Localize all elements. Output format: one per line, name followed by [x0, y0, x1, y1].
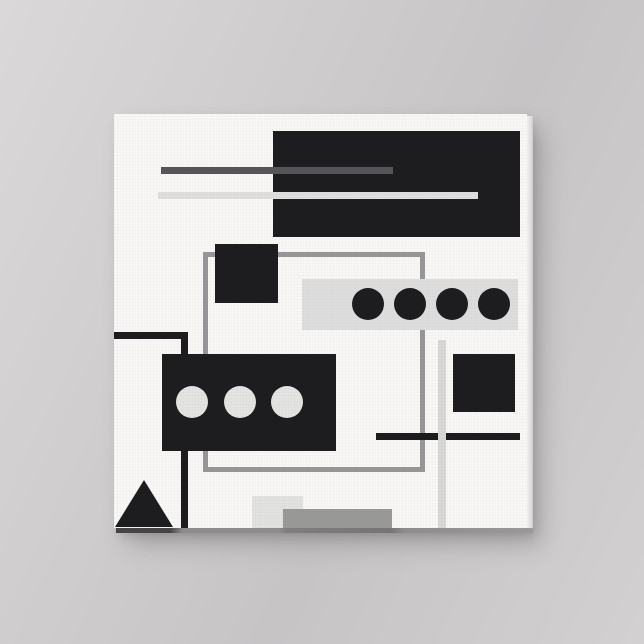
shape-black-line-horizontal	[376, 433, 520, 440]
shape-dotted-bar	[302, 279, 518, 330]
shape-black-rect-three-circles-dot	[224, 386, 256, 418]
shape-small-black-square-top	[215, 244, 278, 303]
shape-dotted-bar-dot	[352, 288, 384, 320]
shape-black-rect-three-circles	[162, 354, 336, 451]
canvas-right-edge	[527, 116, 533, 530]
shape-dotted-bar-dot	[478, 288, 510, 320]
shape-light-gray-stripe	[158, 192, 478, 199]
shape-light-gray-line-vertical	[438, 340, 446, 528]
shape-dark-gray-stripe	[161, 167, 393, 174]
shape-black-l-line-horizontal	[114, 332, 188, 339]
shape-medium-gray-bar-bottom	[283, 509, 392, 528]
canvas-bottom-edge	[116, 528, 533, 533]
shape-dotted-bar-dot	[394, 288, 426, 320]
canvas-artwork	[114, 114, 527, 528]
shape-dotted-bar-dot	[436, 288, 468, 320]
shape-black-rect-three-circles-dot	[176, 386, 208, 418]
shape-black-triangle	[115, 480, 173, 527]
shape-black-rect-three-circles-dot	[271, 386, 303, 418]
shape-black-square-right	[453, 354, 515, 412]
wall-background	[0, 0, 644, 644]
canvas-print	[114, 114, 527, 528]
shape-large-black-rect	[273, 131, 520, 237]
